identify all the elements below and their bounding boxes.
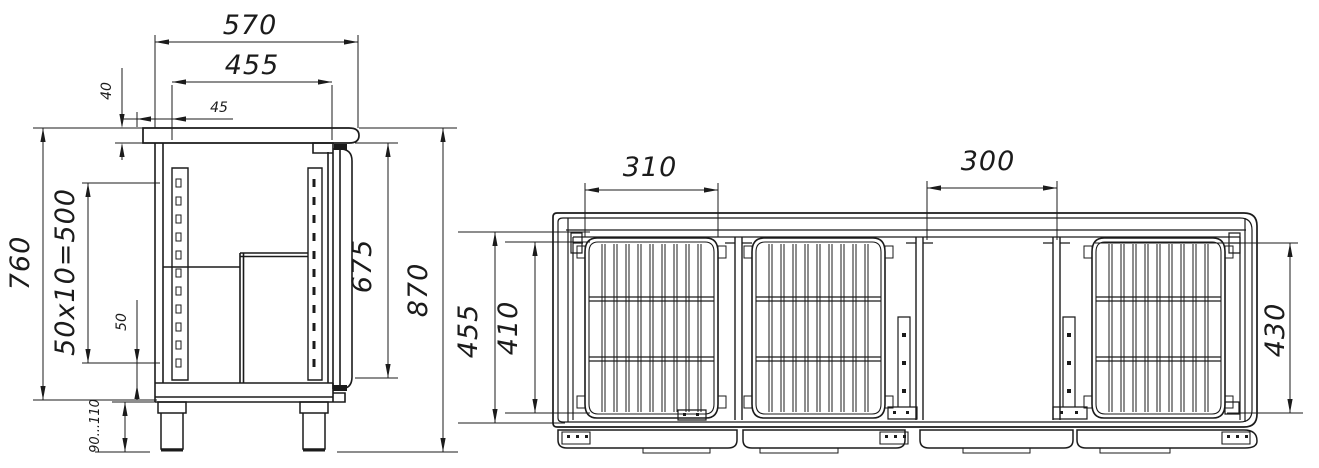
- shelf-crossbars: [1096, 297, 1221, 361]
- shelf-crossbars: [589, 297, 714, 361]
- dim-label-slot-pitch: 50x10=500: [50, 188, 81, 356]
- dim-label-bottom-offset: 50: [114, 313, 130, 331]
- dim-label-body-height: 760: [5, 236, 36, 291]
- dim-label-shelf-height: 410: [493, 301, 524, 356]
- legs: [158, 402, 328, 449]
- shelf-wires: [769, 244, 868, 412]
- shelf-wires: [1109, 244, 1208, 412]
- dim-label-overall-height: 870: [403, 263, 434, 318]
- countertop: [143, 128, 359, 143]
- shelf-rail-slots: [176, 179, 181, 367]
- shelf-crossbars: [756, 297, 881, 361]
- dim-label-rail-inset: 45: [210, 100, 228, 116]
- body-outer: [553, 213, 1257, 427]
- dim-label-top-thickness: 40: [99, 82, 115, 100]
- wire-shelf-3: [1092, 238, 1225, 418]
- shelf-corner-clips: [577, 246, 1233, 408]
- technical-drawing-canvas: 570 455 45 40 760 50x10=500 50 90...110 …: [0, 0, 1319, 468]
- dim-label-shelf-width: 310: [623, 152, 678, 183]
- dim-label-inner-depth: 455: [225, 50, 280, 81]
- dim-label-right-bay-height: 430: [1260, 303, 1291, 358]
- shelf-wires: [602, 244, 701, 412]
- door-panel-3: [920, 430, 1073, 448]
- dim-label-leg-height: 90...110: [88, 399, 103, 453]
- dim-label-open-bay-width: 300: [961, 146, 1016, 177]
- wire-shelf-1: [585, 238, 718, 418]
- technical-drawing: 570 455 45 40 760 50x10=500 50 90...110 …: [0, 0, 1319, 468]
- door-panel-4: [1077, 430, 1257, 448]
- dim-label-top-depth: 570: [223, 10, 278, 41]
- bottom-frame: [155, 383, 345, 402]
- dim-label-inner-height: 455: [453, 304, 484, 359]
- door-panels: [558, 430, 1257, 453]
- dim-label-door-height: 675: [347, 239, 378, 294]
- side-view: [143, 128, 359, 450]
- door-panel-1: [558, 430, 737, 448]
- dimension-arrowheads: [40, 39, 1292, 452]
- wire-shelf-2: [752, 238, 885, 418]
- shelf-rail-left: [172, 168, 188, 380]
- door-panel-2: [743, 430, 905, 448]
